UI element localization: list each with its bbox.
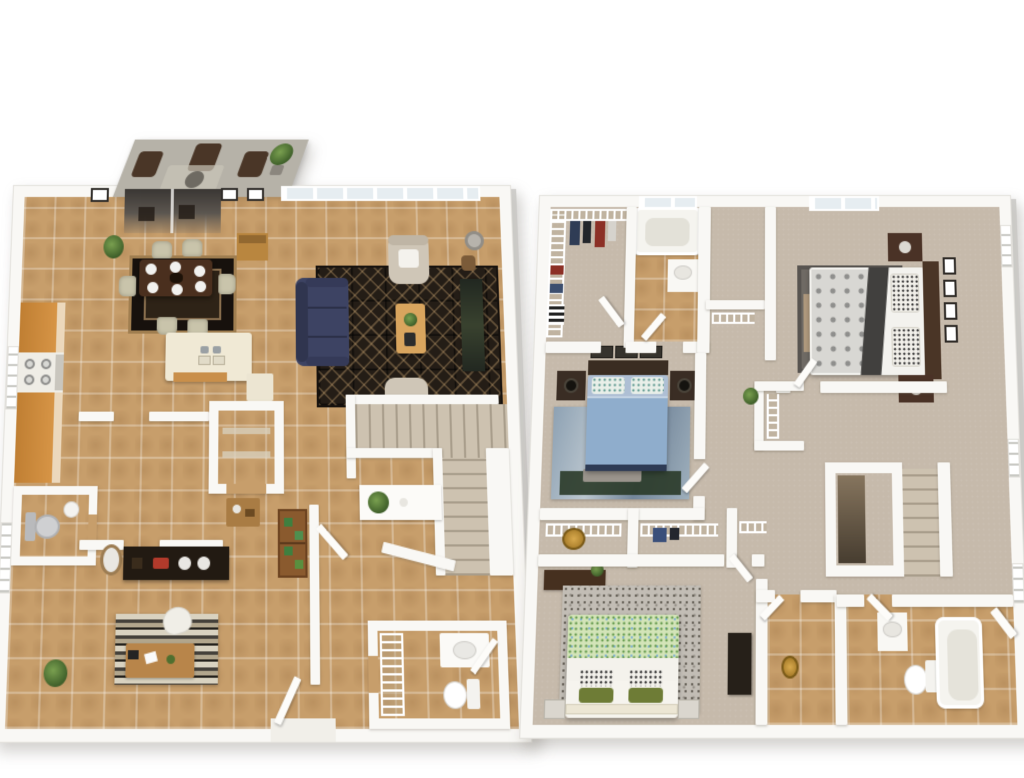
first-floor-plan — [0, 186, 531, 742]
oval-mirror — [100, 544, 123, 575]
bath2-wall — [837, 594, 865, 606]
laundry-wall — [834, 594, 847, 724]
window-left — [0, 522, 13, 593]
pantry-shelf — [222, 451, 270, 457]
island-base-wood — [173, 372, 227, 381]
second-floor-plan — [520, 196, 1024, 738]
patio-chair — [130, 151, 164, 177]
pillow — [891, 327, 920, 367]
duvet-green — [567, 615, 679, 658]
den-door-leaf — [316, 524, 349, 560]
dark-decor — [132, 558, 143, 569]
toilet-bowl — [443, 681, 468, 709]
plate — [171, 284, 182, 295]
green-book — [284, 547, 292, 556]
bedskirt-navy — [585, 465, 666, 471]
folded-clothes — [550, 265, 563, 274]
tub-basin — [947, 629, 979, 700]
table-decor — [404, 333, 416, 347]
stair-wall — [346, 395, 499, 405]
sink-basin — [198, 356, 210, 365]
plate — [195, 281, 206, 292]
bathtub — [935, 617, 985, 709]
stair-wall — [937, 462, 952, 576]
burner — [24, 359, 35, 370]
sideboard — [123, 547, 229, 580]
window-right — [1000, 225, 1013, 267]
bookcase — [278, 509, 308, 578]
pantry-shelf — [223, 428, 271, 434]
zebra-bin — [549, 304, 565, 325]
kitchen-plant — [103, 235, 124, 258]
dining-chair — [152, 241, 172, 258]
table-plant — [404, 313, 418, 326]
stair-wall — [486, 448, 514, 575]
bath2-wall — [892, 594, 1013, 606]
linen-wire-shelf — [712, 313, 755, 324]
dining-table — [139, 259, 213, 296]
vanity-sink — [883, 622, 902, 638]
laundry-tile-floor — [767, 594, 835, 724]
wall-frame — [221, 188, 238, 201]
red-decor — [153, 558, 169, 569]
patio-chair — [236, 151, 269, 177]
hall-plant — [743, 388, 759, 405]
patio-plant-pot — [269, 165, 285, 175]
lamp — [899, 241, 911, 253]
console-plant — [368, 491, 389, 513]
burner — [40, 375, 51, 386]
floor-plan-canvas — [0, 0, 1024, 778]
throw-pillow — [398, 249, 419, 267]
green-book — [295, 531, 303, 540]
window-right — [1007, 439, 1020, 478]
kitchen-cabinet-lower — [14, 392, 63, 482]
accent-stool — [461, 255, 476, 270]
master-bed — [809, 267, 927, 375]
nightstand-small — [678, 699, 700, 719]
sofa-cushion-seam — [308, 307, 347, 309]
stair-console-table — [359, 485, 442, 520]
wire-shelf-closet — [380, 633, 405, 716]
floor-lamp — [464, 231, 484, 250]
gold-basket — [562, 528, 586, 550]
dining-chair — [119, 276, 137, 297]
pillow-dotted — [629, 669, 664, 686]
linen2-wall — [754, 441, 804, 451]
burner — [24, 375, 35, 386]
dining-chair — [182, 239, 202, 256]
toilet-tank — [467, 679, 481, 709]
window-right — [1012, 563, 1024, 603]
pillow-olive — [579, 688, 614, 703]
nightstand-small — [544, 699, 566, 719]
bedroom3-wall — [752, 554, 765, 566]
pillow-teal — [592, 377, 625, 394]
window-left — [5, 346, 19, 409]
sliding-glass-door — [124, 189, 221, 233]
sofa-armrest — [306, 278, 349, 287]
sofa-cushion-seam — [308, 336, 347, 338]
master-wall — [765, 207, 776, 360]
wall-frame — [943, 257, 957, 274]
faucet — [213, 346, 221, 353]
hanging-clothes — [653, 528, 667, 542]
nightstand — [888, 233, 923, 261]
centerpiece — [170, 273, 183, 283]
hanging-clothes — [608, 221, 617, 241]
paper — [144, 651, 158, 664]
nightstand-speaker — [556, 371, 586, 401]
closet-wire-shelf — [739, 521, 766, 533]
headboard-bar — [565, 704, 678, 714]
patio-plant — [267, 143, 297, 165]
vanity-sink — [674, 265, 692, 279]
gold-basket — [781, 656, 798, 679]
stair-down-flight — [902, 469, 940, 577]
window-band-top — [639, 196, 697, 209]
den-plant — [43, 659, 67, 687]
wall-tv — [728, 633, 752, 695]
door-gap — [368, 656, 378, 693]
sink-basin — [213, 356, 225, 365]
tub-basin — [645, 218, 690, 246]
plate — [145, 264, 156, 275]
dining-chair — [218, 274, 235, 295]
closet-wire-top — [550, 209, 627, 221]
green-book — [295, 560, 304, 569]
desk-item — [128, 650, 139, 659]
hall-wall — [79, 412, 114, 422]
pantry-closet — [209, 401, 284, 494]
pantry-door-gap — [226, 484, 266, 494]
laundry-wall — [800, 590, 836, 602]
console-side-table — [237, 233, 268, 260]
wall-frame — [943, 280, 957, 297]
door-mullion — [170, 189, 174, 233]
desk — [125, 643, 194, 677]
counter-edge — [52, 392, 63, 482]
pillow-dotted — [579, 669, 614, 686]
bedroom2-wall — [694, 353, 707, 459]
shelf-line — [280, 542, 305, 544]
plate-decor — [178, 557, 191, 570]
hall-wall — [149, 412, 209, 422]
island-extension — [246, 373, 273, 401]
glass-reflection-chair — [179, 205, 195, 219]
stair-lower-flight — [442, 458, 490, 576]
bath-vanity — [667, 259, 698, 292]
burner — [41, 359, 52, 370]
bath-wall — [697, 207, 711, 353]
wall-frame — [944, 325, 958, 343]
hanging-clothes — [569, 221, 580, 245]
wall-frame — [944, 302, 958, 320]
kitchen-island — [165, 333, 252, 381]
wall-strip — [546, 342, 602, 353]
linen2-wire — [767, 394, 779, 439]
kitchen-cabinet-upper — [19, 303, 66, 353]
plate — [147, 282, 158, 293]
folded-clothes — [550, 284, 563, 293]
bedroom2-wall — [540, 508, 705, 520]
closet-door-leaf — [598, 296, 624, 328]
sofa-armrest — [306, 357, 349, 366]
sofa-back — [295, 282, 308, 362]
stove — [17, 352, 64, 392]
hanging-clothes — [670, 528, 680, 540]
media-console — [460, 279, 485, 371]
speaker — [677, 378, 692, 393]
pillow — [890, 274, 919, 313]
armchair — [388, 235, 430, 284]
hanging-clothes — [583, 221, 592, 243]
coffee-table — [395, 304, 426, 354]
stair-wall — [346, 448, 442, 458]
half-bath — [11, 486, 98, 565]
den-rug — [114, 614, 218, 685]
duvet-gray-floral — [811, 269, 869, 372]
plate-decor — [197, 557, 210, 570]
bath2-vanity — [877, 612, 908, 651]
green-book — [284, 518, 292, 527]
wall-frame — [247, 188, 264, 201]
duvet-blue — [585, 396, 667, 464]
desk-plant-cup — [166, 655, 175, 664]
bedroom3-door-leaf — [729, 554, 754, 583]
glass-reflection-chair — [138, 207, 154, 221]
toilet-bowl — [34, 515, 60, 539]
faucet — [200, 346, 208, 353]
console-cup — [399, 498, 408, 507]
table-top-shade — [239, 235, 266, 243]
bedroom3-wall — [538, 554, 724, 566]
bed3 — [565, 615, 679, 718]
trinket — [233, 505, 241, 514]
stair-void — [838, 475, 866, 563]
master-headboard — [922, 261, 941, 379]
desk-chair — [160, 603, 195, 638]
bathroom — [368, 621, 511, 729]
bed2 — [585, 375, 668, 471]
hanging-clothes — [595, 221, 606, 247]
plate — [170, 262, 181, 273]
accent-desk — [226, 498, 260, 527]
armchair-back — [388, 235, 429, 245]
plate — [194, 266, 205, 277]
sofa — [295, 278, 349, 366]
counter-edge — [56, 303, 66, 353]
window-band-top — [281, 186, 481, 201]
pillow-teal — [631, 377, 664, 394]
linen-wall — [706, 300, 765, 309]
stove-front — [55, 355, 64, 391]
stairwell-parapet — [825, 462, 904, 576]
vanity-sink — [453, 641, 477, 659]
master-wall — [820, 381, 947, 393]
wall-strip — [625, 342, 656, 353]
window-band-top — [809, 196, 879, 211]
pillow-olive — [628, 688, 663, 703]
bathtub — [634, 207, 701, 255]
pedestal-sink — [63, 501, 79, 517]
trinket — [245, 509, 254, 517]
speaker — [564, 378, 579, 393]
bed2-headboard — [588, 360, 668, 375]
wall-frame — [91, 188, 109, 202]
